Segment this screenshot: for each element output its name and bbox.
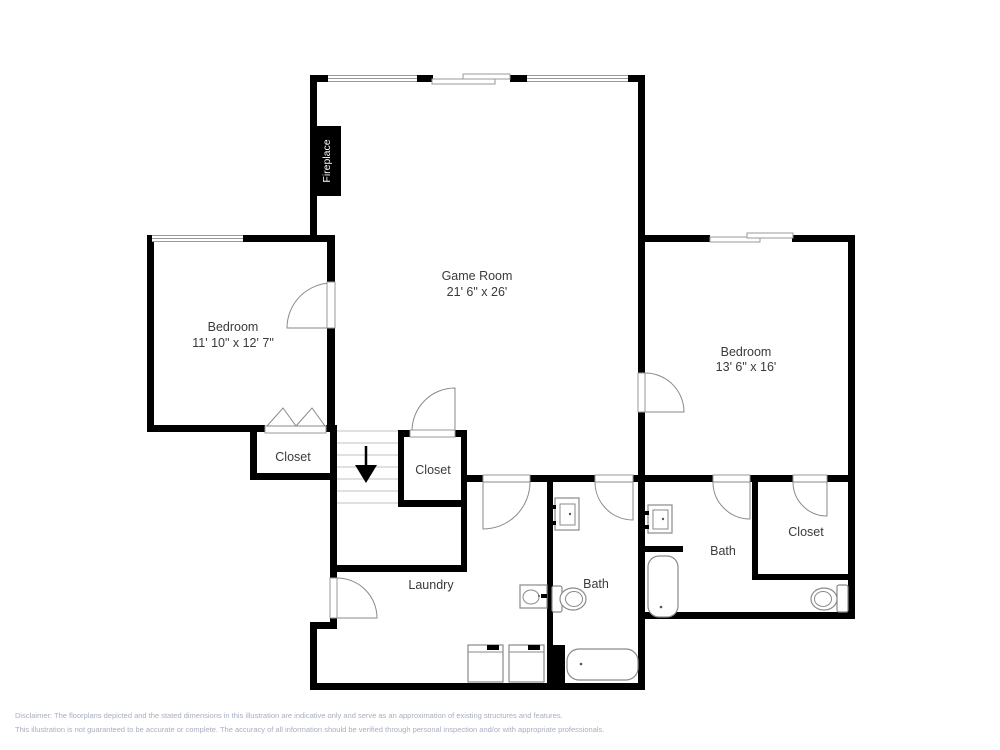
sink-icon: [520, 585, 547, 608]
wall-segment: [417, 75, 433, 82]
door-swing: [337, 578, 377, 618]
door-swing: [595, 482, 633, 520]
disclaimer-line-2: This illustration is not guaranteed to b…: [15, 725, 604, 734]
door-swing: [287, 283, 332, 328]
door-leaf: [410, 430, 455, 437]
wall-segment: [398, 500, 467, 507]
door-swing: [793, 482, 827, 516]
wall-segment: [645, 475, 713, 482]
wall-segment: [752, 482, 758, 580]
stairs: [337, 431, 398, 503]
walls: [147, 75, 855, 690]
window: [152, 235, 243, 242]
wall-segment: [792, 235, 855, 242]
room-label-closet-center: Closet: [415, 463, 451, 477]
windows: [152, 74, 793, 242]
room-label-game-room: Game Room: [442, 269, 513, 283]
door-swing: [645, 373, 684, 412]
toilet-icon: [552, 586, 586, 612]
door-leaf: [713, 475, 750, 482]
wall-segment: [327, 328, 335, 432]
bathtub-icon: [648, 556, 678, 617]
bifold-door-icon: [265, 408, 326, 433]
wall-segment: [147, 235, 154, 432]
wall-segment: [510, 75, 527, 82]
sink-icon: [643, 505, 672, 533]
room-label-bedroom-right: Bedroom: [721, 345, 772, 359]
wall-segment: [827, 475, 855, 482]
down-arrow-icon: [355, 446, 377, 483]
room-label-closet-right: Closet: [788, 525, 824, 539]
wall-segment: [645, 546, 683, 552]
bathtub-icon: [567, 649, 638, 680]
door-leaf: [793, 475, 827, 482]
room-label-closet-left: Closet: [275, 450, 311, 464]
wall-segment: [547, 645, 565, 684]
wall-segment: [250, 473, 337, 480]
door-leaf: [595, 475, 633, 482]
door-leaf: [483, 475, 530, 482]
door-leaf: [638, 373, 645, 412]
wall-segment: [310, 683, 645, 690]
wall-segment: [310, 622, 317, 690]
room-label-bath-right: Bath: [710, 544, 736, 558]
window: [328, 75, 417, 82]
wall-segment: [633, 475, 645, 482]
wall-segment: [398, 430, 404, 507]
wall-segment: [330, 565, 467, 572]
sink-icon: [550, 498, 579, 530]
wall-segment: [750, 475, 793, 482]
room-label-bedroom-left: Bedroom: [208, 320, 259, 334]
fireplace: Fireplace: [313, 126, 341, 196]
door-leaf: [330, 578, 337, 618]
room-label-bath-center: Bath: [583, 577, 609, 591]
wall-segment: [638, 412, 645, 690]
wall-segment: [147, 425, 265, 432]
door-leaf: [327, 282, 335, 328]
floor-plan-drawing: Fireplace Game Room 21' 6" x 26' Bedroom…: [0, 0, 1000, 750]
floor-plan: Fireplace Game Room 21' 6" x 26' Bedroom…: [0, 0, 1000, 750]
window: [432, 79, 495, 84]
wall-segment: [327, 237, 335, 282]
fireplace-label: Fireplace: [321, 139, 333, 182]
window: [747, 233, 793, 238]
room-dims-bedroom-right: 13' 6" x 16': [716, 360, 777, 374]
wall-segment: [645, 235, 710, 242]
wall-segment: [638, 75, 645, 373]
wall-segment: [243, 235, 335, 242]
room-dims-bedroom-left: 11' 10" x 12' 7": [192, 336, 274, 350]
wall-segment: [752, 574, 855, 580]
window: [527, 75, 628, 82]
toilet-icon: [811, 585, 848, 612]
door-swing: [412, 388, 455, 431]
wall-segment: [250, 432, 257, 480]
dryer-icon: [509, 645, 544, 682]
door-swing: [713, 482, 750, 519]
wall-segment: [848, 235, 855, 618]
room-dims-game-room: 21' 6" x 26': [447, 285, 508, 299]
window: [463, 74, 510, 79]
room-label-laundry: Laundry: [408, 578, 454, 592]
washer-icon: [468, 645, 503, 682]
wall-segment: [530, 475, 595, 482]
wall-segment: [330, 432, 337, 578]
door-swing: [483, 482, 530, 529]
disclaimer-line-1: Disclaimer: The floorplans depicted and …: [15, 711, 563, 720]
